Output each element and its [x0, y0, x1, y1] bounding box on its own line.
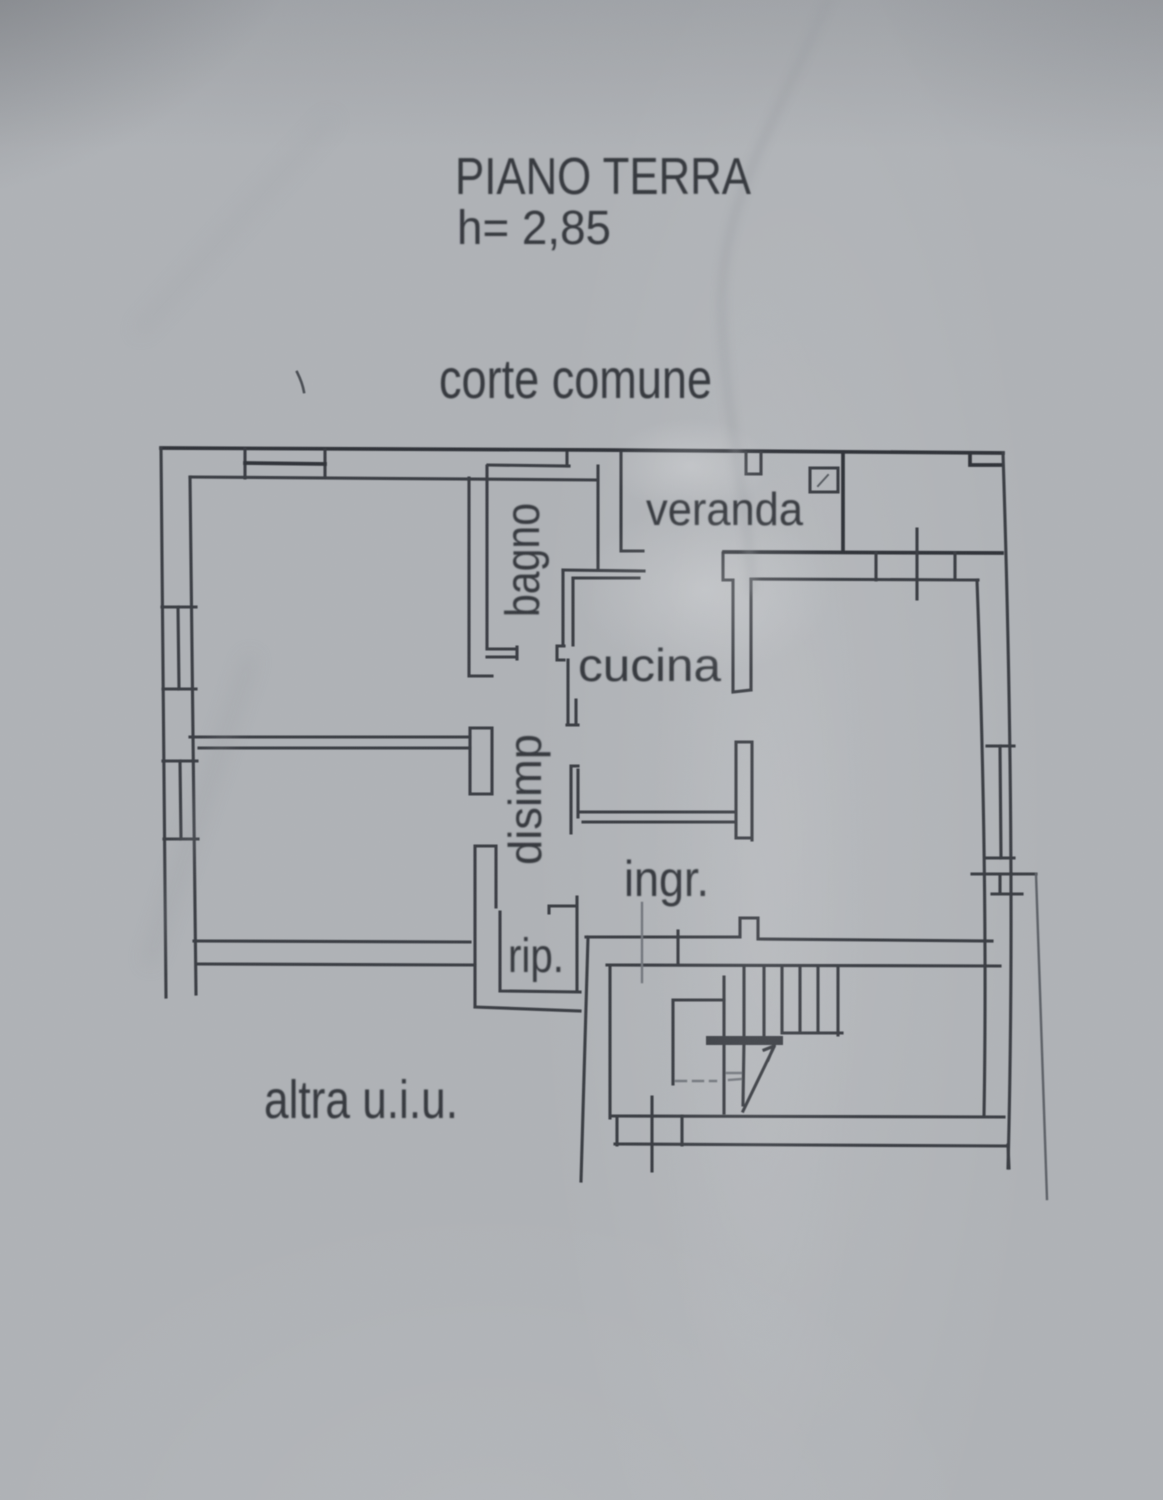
svg-text:bagno: bagno: [497, 503, 550, 617]
svg-text:veranda: veranda: [646, 483, 803, 535]
svg-text:altra u.i.u.: altra u.i.u.: [264, 1070, 458, 1130]
svg-text:disimp: disimp: [499, 734, 551, 865]
svg-text:h= 2,85: h= 2,85: [457, 202, 611, 255]
svg-text:corte comune: corte comune: [439, 347, 712, 410]
svg-text:rip.: rip.: [508, 930, 564, 983]
svg-text:PIANO TERRA: PIANO TERRA: [455, 148, 751, 206]
svg-text:cucina: cucina: [578, 639, 721, 691]
svg-text:ingr.: ingr.: [624, 851, 709, 907]
